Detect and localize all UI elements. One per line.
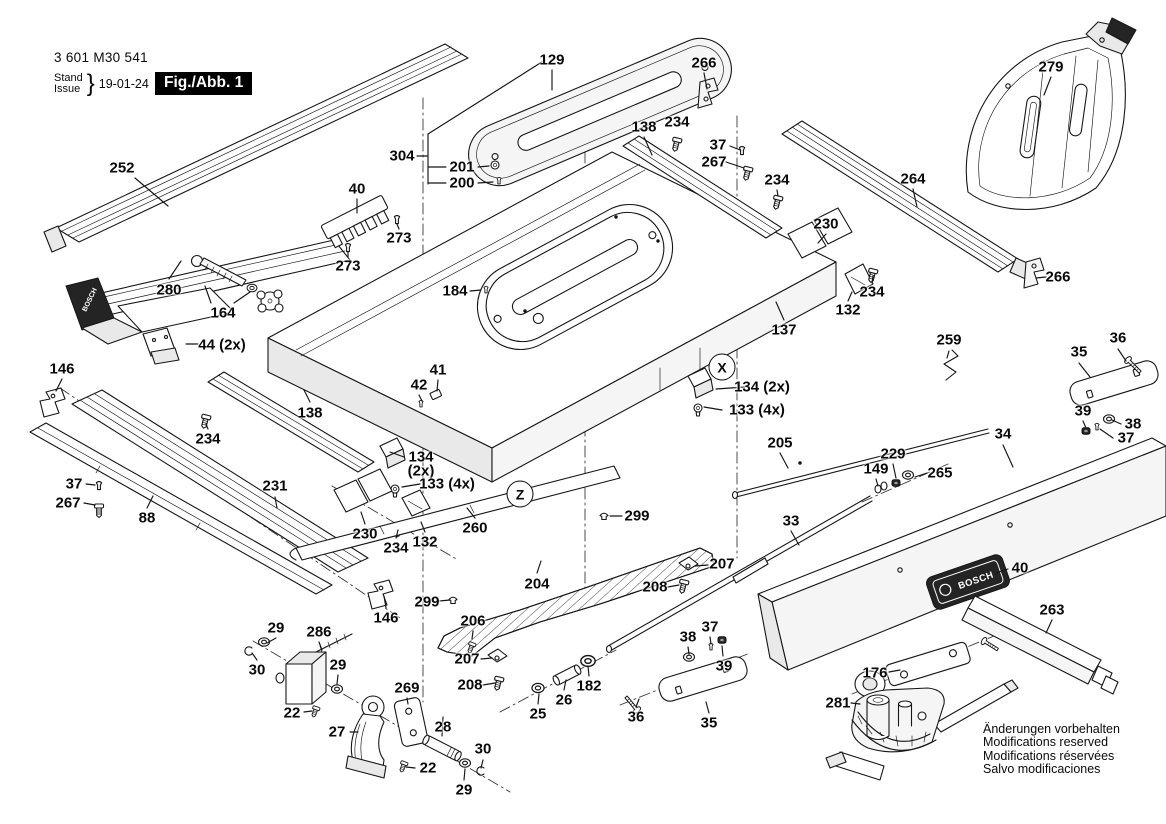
- part-label-133-4x: 133 (4x): [729, 402, 785, 419]
- part-label-40: 40: [1012, 560, 1029, 577]
- part-label-176: 176: [862, 665, 887, 682]
- part-label-35: 35: [701, 715, 718, 732]
- part-label-39: 39: [716, 658, 733, 675]
- part-label-201: 201: [449, 159, 474, 176]
- part-label-22: 22: [420, 760, 437, 777]
- part-label-34: 34: [995, 426, 1012, 443]
- part-label-41: 41: [430, 362, 447, 379]
- part-label-29: 29: [456, 782, 473, 799]
- part-label-38: 38: [680, 629, 697, 646]
- part-label-234: 234: [859, 284, 884, 301]
- part-label-234: 234: [195, 431, 220, 448]
- part-label-267: 267: [55, 495, 80, 512]
- part-label-206: 206: [460, 613, 485, 630]
- part-label-260: 260: [462, 520, 487, 537]
- part-label-304: 304: [389, 148, 414, 165]
- part-label-266: 266: [691, 55, 716, 72]
- part-label-231: 231: [262, 478, 287, 495]
- part-label-146: 146: [373, 610, 398, 627]
- part-label-132: 132: [412, 534, 437, 551]
- part-label-36: 36: [628, 709, 645, 726]
- issue-brace: }: [87, 74, 95, 94]
- part-label-264: 264: [900, 171, 925, 188]
- part-label-25: 25: [530, 706, 547, 723]
- part-label-279: 279: [1038, 59, 1063, 76]
- part-label-265: 265: [927, 465, 952, 482]
- issue-block: Stand Issue } 19-01-24: [54, 73, 149, 95]
- note-line-de: Änderungen vorbehalten: [983, 723, 1120, 736]
- part-label-207: 207: [454, 651, 479, 668]
- part-label-133-4x: 133 (4x): [419, 476, 475, 493]
- part-label-299: 299: [414, 594, 439, 611]
- part-label-37: 37: [710, 137, 727, 154]
- note-line-fr: Modifications réservées: [983, 750, 1120, 763]
- part-label-273: 273: [335, 258, 360, 275]
- issue-date: 19-01-24: [99, 77, 149, 91]
- part-label-205: 205: [767, 435, 792, 452]
- part-label-269: 269: [394, 680, 419, 697]
- part-label-37: 37: [1118, 430, 1135, 447]
- part-label-263: 263: [1039, 602, 1064, 619]
- part-label-230: 230: [813, 216, 838, 233]
- part-label-22: 22: [284, 705, 301, 722]
- part-label-267: 267: [701, 154, 726, 171]
- part-label-184: 184: [442, 283, 467, 300]
- modifications-note: Änderungen vorbehalten Modifications res…: [983, 723, 1120, 777]
- part-label-138: 138: [631, 119, 656, 136]
- document-number: 3 601 M30 541: [54, 50, 148, 65]
- part-label-30: 30: [475, 741, 492, 758]
- part-label-280: 280: [156, 282, 181, 299]
- view-marker-z: Z: [507, 481, 534, 508]
- part-label-164: 164: [210, 305, 235, 322]
- part-label-204: 204: [524, 576, 549, 593]
- part-label-129: 129: [539, 52, 564, 69]
- part-label-42: 42: [411, 377, 428, 394]
- part-label-208: 208: [642, 579, 667, 596]
- part-label-26: 26: [556, 692, 573, 709]
- part-label-29: 29: [330, 657, 347, 674]
- part-label-252: 252: [109, 160, 134, 177]
- issue-label: Issue: [54, 84, 83, 95]
- part-label-28: 28: [435, 719, 452, 736]
- part-label-35: 35: [1071, 344, 1088, 361]
- part-label-200: 200: [449, 175, 474, 192]
- part-label-230: 230: [352, 526, 377, 543]
- part-label-234: 234: [764, 172, 789, 189]
- part-label-132: 132: [835, 302, 860, 319]
- part-label-30: 30: [249, 662, 266, 679]
- part-label-44-2x: 44 (2x): [198, 337, 246, 354]
- note-line-en: Modifications reserved: [983, 736, 1120, 749]
- note-line-es: Salvo modificaciones: [983, 763, 1120, 776]
- parts-diagram-page: BOSCH: [0, 0, 1166, 824]
- part-label-138: 138: [297, 405, 322, 422]
- part-label-36: 36: [1110, 330, 1127, 347]
- part-label-266: 266: [1045, 269, 1070, 286]
- part-label-29: 29: [268, 620, 285, 637]
- part-label-146: 146: [49, 361, 74, 378]
- figure-label: Fig./Abb. 1: [155, 72, 252, 95]
- part-label-149: 149: [863, 461, 888, 478]
- part-label-234: 234: [664, 114, 689, 131]
- part-label-208: 208: [457, 677, 482, 694]
- part-label-286: 286: [306, 624, 331, 641]
- part-label-39: 39: [1075, 403, 1092, 420]
- part-label-88: 88: [139, 510, 156, 527]
- part-label-137: 137: [771, 322, 796, 339]
- part-label-281: 281: [825, 695, 850, 712]
- part-label-27: 27: [329, 724, 346, 741]
- part-label-37: 37: [702, 619, 719, 636]
- part-label-182: 182: [576, 678, 601, 695]
- part-label-299: 299: [624, 508, 649, 525]
- part-labels-layer: 2523042012001292661382343726723427926423…: [0, 0, 1166, 824]
- part-label-40: 40: [349, 181, 366, 198]
- part-label-33: 33: [783, 513, 800, 530]
- part-label-273: 273: [386, 230, 411, 247]
- part-label-207: 207: [709, 556, 734, 573]
- part-label-37: 37: [66, 476, 83, 493]
- part-label-134-2x: 134 (2x): [734, 379, 790, 396]
- part-label-259: 259: [936, 332, 961, 349]
- view-marker-x: X: [709, 354, 736, 381]
- part-label-234: 234: [383, 540, 408, 557]
